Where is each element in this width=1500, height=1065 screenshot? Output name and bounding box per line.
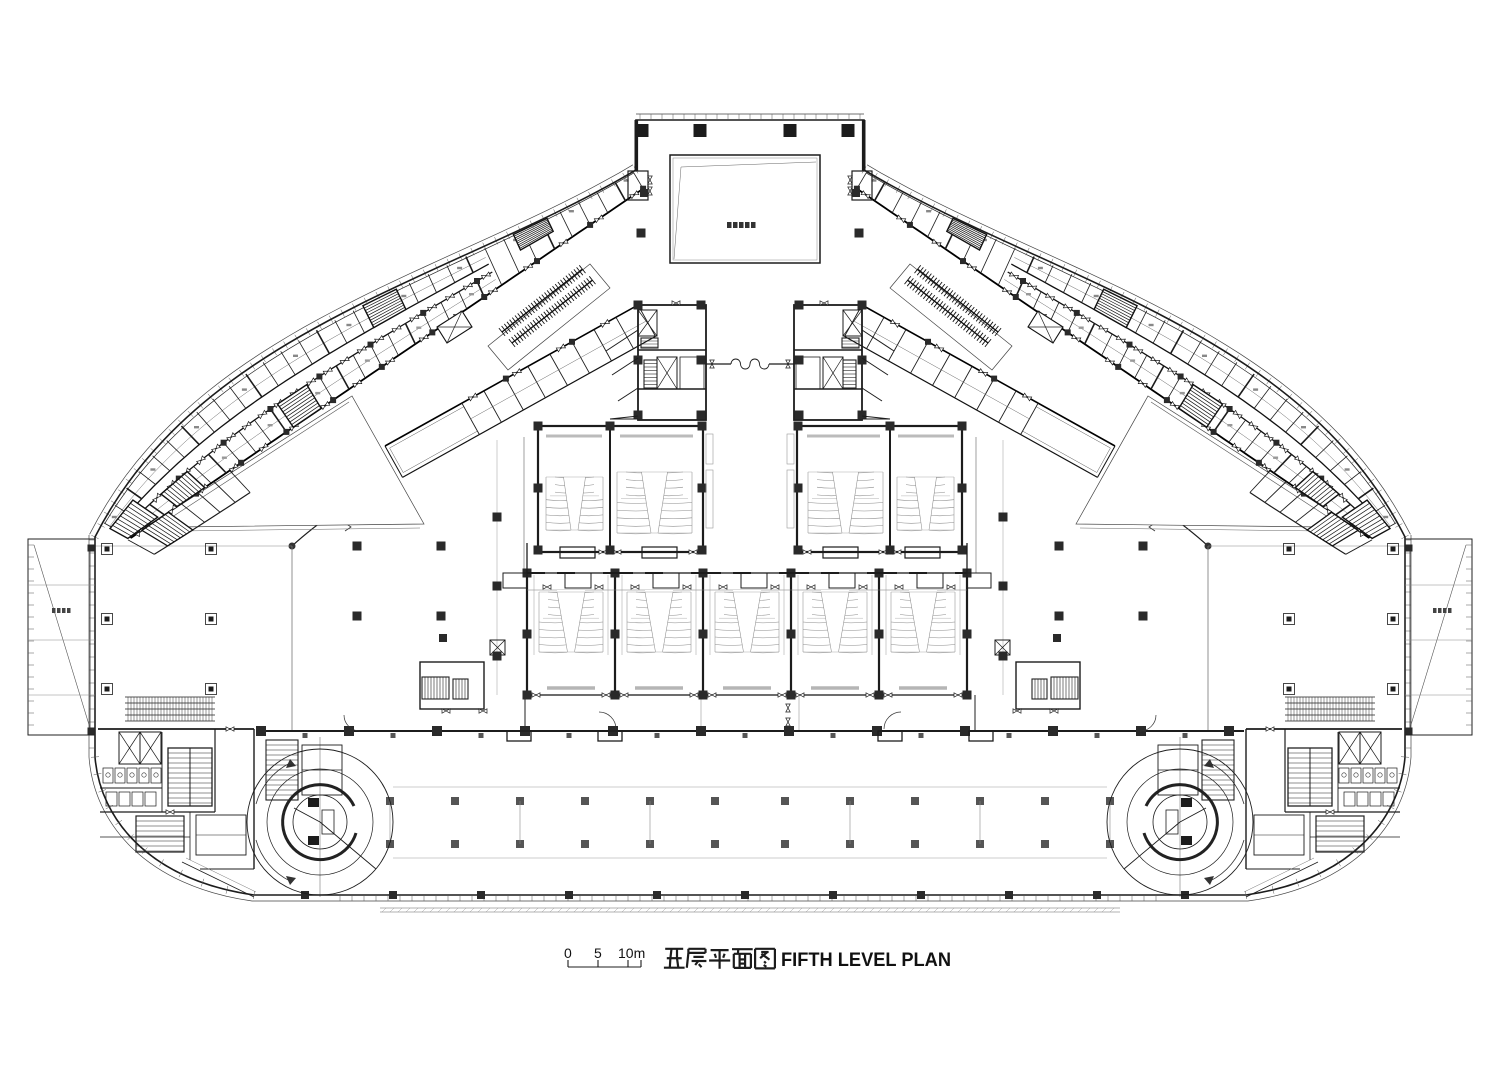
svg-text:10m: 10m [618,945,645,961]
svg-text:FIFTH LEVEL PLAN: FIFTH LEVEL PLAN [781,950,951,971]
svg-text:5: 5 [594,945,602,961]
svg-text:0: 0 [564,945,572,961]
